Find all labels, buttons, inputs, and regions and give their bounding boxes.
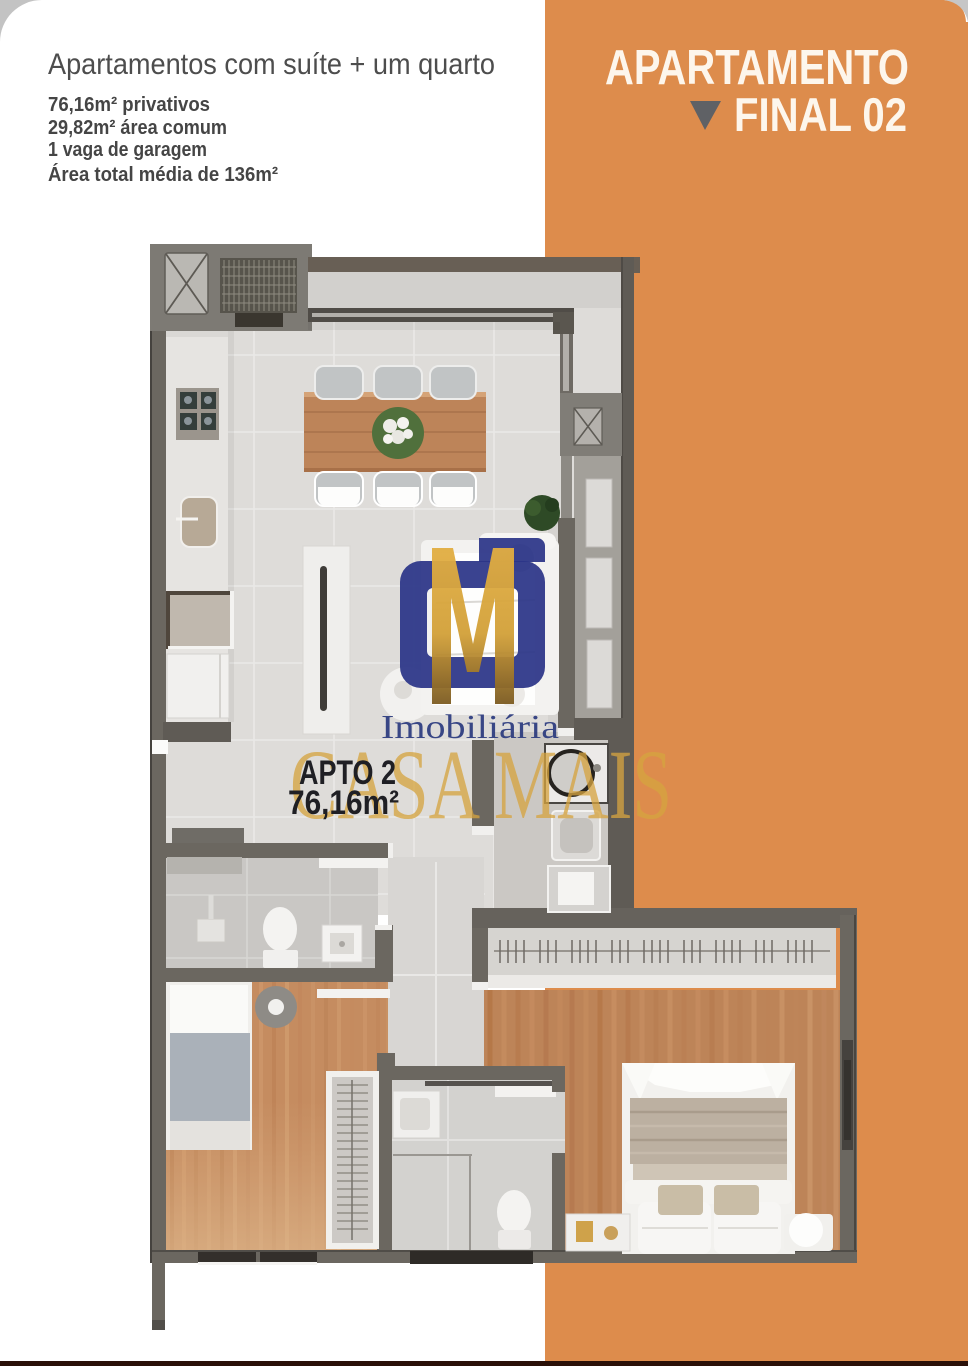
svg-text:1 vaga de garagem: 1 vaga de garagem (48, 139, 207, 161)
svg-text:76,16m² privativos: 76,16m² privativos (48, 94, 210, 116)
svg-text:76,16m²: 76,16m² (288, 784, 399, 822)
svg-text:Apartamentos com suíte + um qu: Apartamentos com suíte + um quarto (48, 48, 495, 81)
svg-text:APARTAMENTO: APARTAMENTO (605, 41, 909, 95)
svg-text:29,82m² área comum: 29,82m² área comum (48, 117, 227, 139)
svg-text:Área total média de 136m²: Área total média de 136m² (48, 163, 278, 186)
svg-text:FINAL 02: FINAL 02 (734, 88, 907, 141)
